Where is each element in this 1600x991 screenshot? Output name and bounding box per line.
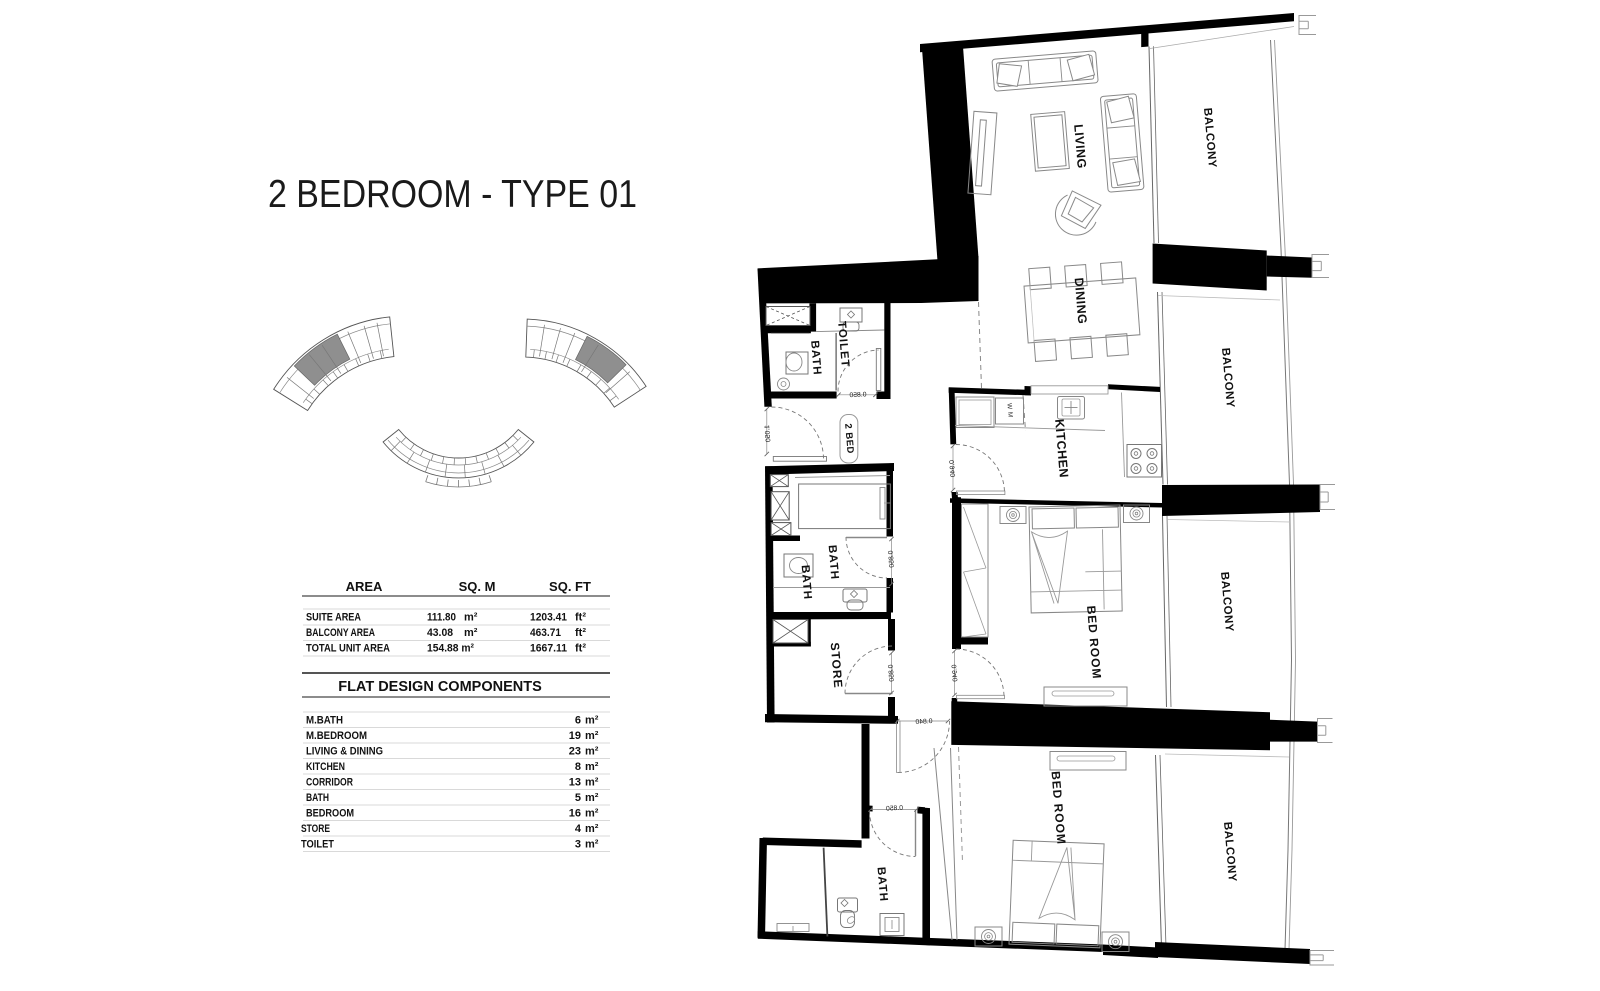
svg-text:1203.41: 1203.41 [530, 612, 567, 624]
svg-text:3: 3 [575, 839, 581, 851]
svg-text:463.71: 463.71 [530, 627, 561, 639]
svg-text:BATH: BATH [306, 792, 329, 804]
svg-text:m²: m² [585, 761, 599, 773]
svg-text:m²: m² [464, 627, 478, 639]
svg-text:ft²: ft² [575, 612, 586, 624]
svg-text:LIVING & DINING: LIVING & DINING [306, 746, 383, 758]
svg-text:KITCHEN: KITCHEN [306, 761, 345, 773]
svg-text:111.80: 111.80 [427, 612, 456, 624]
svg-text:1667.11: 1667.11 [530, 643, 567, 655]
svg-text:TOTAL UNIT AREA: TOTAL UNIT AREA [306, 643, 390, 655]
svg-text:m²: m² [585, 823, 599, 835]
svg-text:SQ. FT: SQ. FT [549, 579, 591, 594]
svg-text:m²: m² [585, 730, 599, 742]
svg-text:SQ. M: SQ. M [459, 579, 496, 594]
svg-text:M.BEDROOM: M.BEDROOM [306, 730, 367, 742]
svg-text:AREA: AREA [346, 579, 383, 594]
svg-text:0.850: 0.850 [886, 805, 904, 813]
svg-text:23: 23 [569, 746, 581, 758]
svg-text:154.88 m²: 154.88 m² [427, 643, 474, 655]
svg-text:4: 4 [575, 823, 582, 835]
svg-text:0.940: 0.940 [951, 664, 959, 682]
svg-text:1.050: 1.050 [764, 425, 772, 443]
svg-text:m²: m² [464, 612, 478, 624]
svg-text:BALCONY AREA: BALCONY AREA [306, 627, 375, 639]
svg-text:FLAT DESIGN COMPONENTS: FLAT DESIGN COMPONENTS [338, 679, 542, 695]
svg-text:16: 16 [569, 808, 581, 820]
svg-text:STORE: STORE [301, 823, 330, 835]
svg-text:8: 8 [575, 761, 581, 773]
svg-text:m²: m² [585, 792, 599, 804]
svg-text:ft²: ft² [575, 627, 586, 639]
svg-text:ft²: ft² [575, 643, 586, 655]
svg-text:m²: m² [585, 746, 599, 758]
svg-text:43.08: 43.08 [427, 627, 453, 639]
svg-text:W M: W M [1005, 403, 1013, 418]
svg-text:m²: m² [585, 715, 599, 727]
svg-text:0.840: 0.840 [915, 718, 933, 726]
svg-text:m²: m² [585, 808, 599, 820]
svg-text:2 BEDROOM - TYPE 01: 2 BEDROOM - TYPE 01 [268, 173, 637, 216]
svg-text:m²: m² [585, 777, 599, 789]
svg-text:SUITE AREA: SUITE AREA [306, 612, 361, 624]
svg-text:0.850: 0.850 [888, 664, 896, 682]
svg-text:0.940: 0.940 [949, 460, 957, 478]
svg-text:5: 5 [575, 792, 581, 804]
svg-text:M.BATH: M.BATH [306, 715, 343, 727]
svg-text:6: 6 [575, 715, 581, 727]
svg-text:19: 19 [569, 730, 581, 742]
svg-text:TOILET: TOILET [301, 839, 334, 851]
svg-text:0.850: 0.850 [888, 550, 896, 568]
svg-text:13: 13 [569, 777, 581, 789]
svg-text:0.850: 0.850 [849, 391, 867, 399]
svg-text:m²: m² [585, 839, 599, 851]
svg-text:CORRIDOR: CORRIDOR [306, 777, 353, 789]
svg-text:BEDROOM: BEDROOM [306, 808, 354, 820]
